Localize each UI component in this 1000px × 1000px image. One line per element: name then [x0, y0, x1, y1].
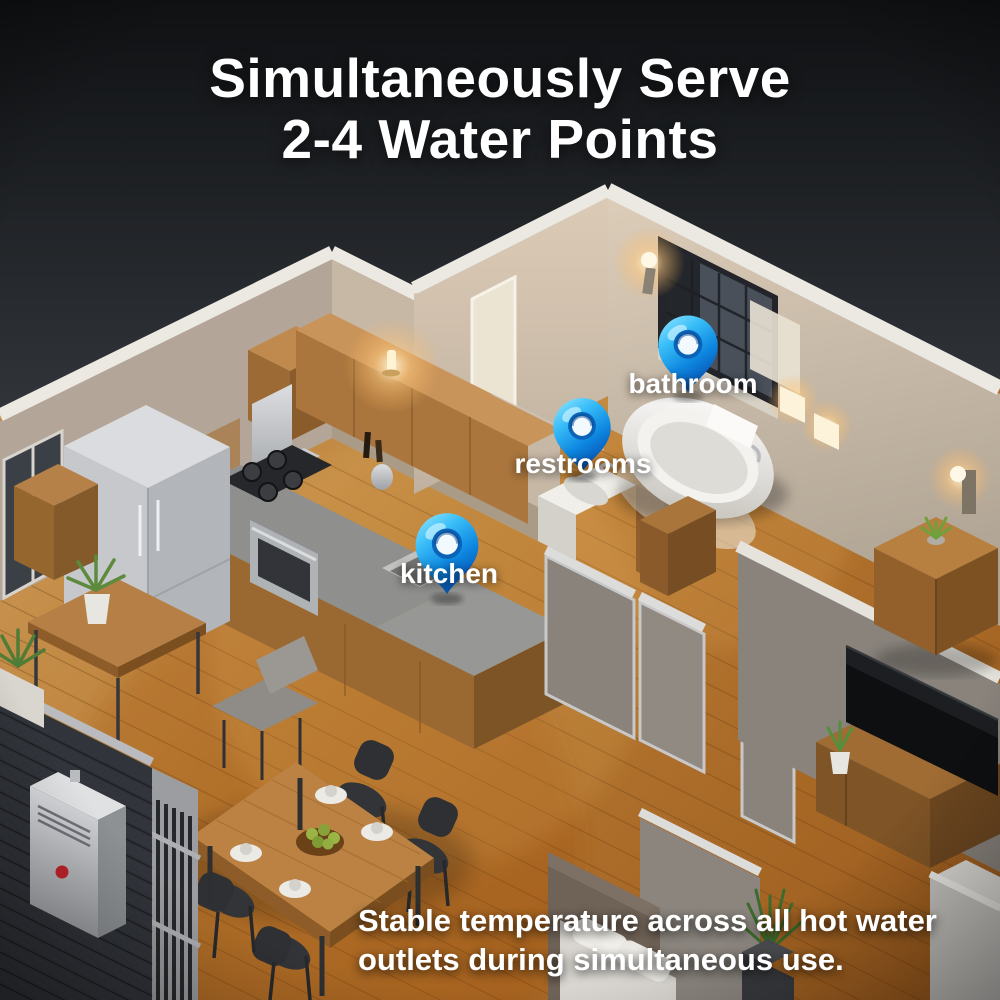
poster: Simultaneously Serve 2-4 Water Points ki… — [0, 0, 1000, 1000]
headline-line-1: Simultaneously Serve — [0, 48, 1000, 109]
bathroom-pin-label: bathroom — [628, 368, 757, 400]
headline: Simultaneously Serve 2-4 Water Points — [0, 48, 1000, 169]
restrooms-pin-label: restrooms — [515, 448, 652, 480]
caption: Stable temperature across all hot water … — [358, 901, 937, 980]
headline-line-2: 2-4 Water Points — [0, 109, 1000, 170]
caption-line-2: outlets during simultaneous use. — [358, 940, 937, 979]
caption-line-1: Stable temperature across all hot water — [358, 901, 937, 940]
kitchen-pin-label: kitchen — [400, 558, 498, 590]
